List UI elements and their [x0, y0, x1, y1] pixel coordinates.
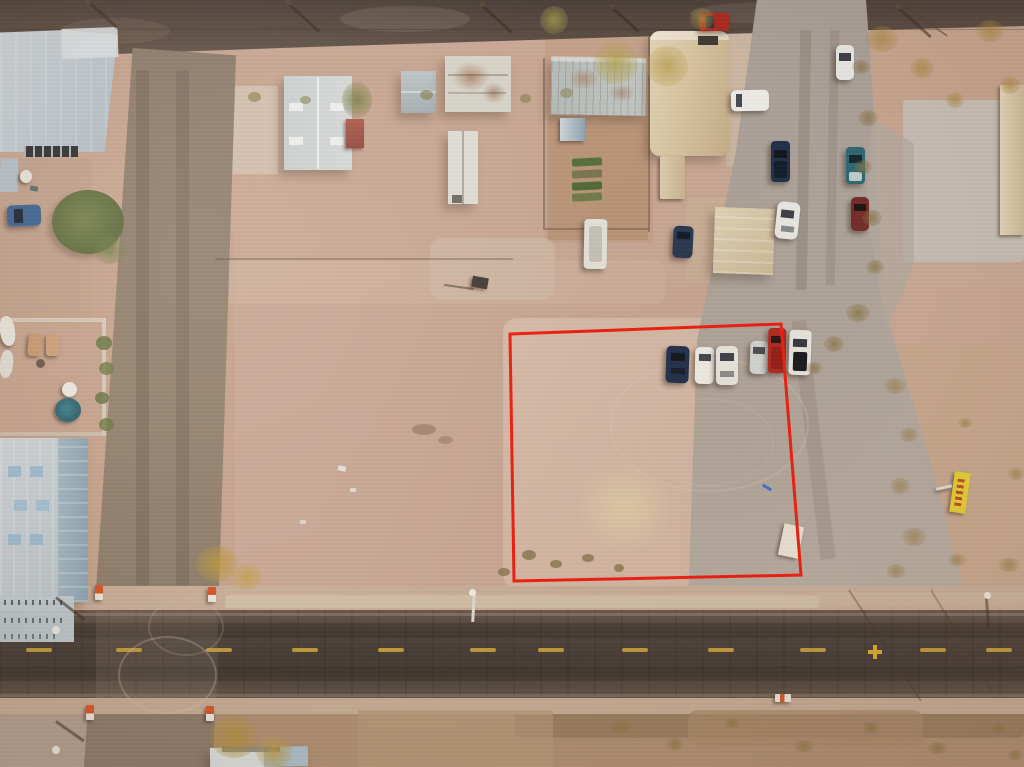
weeds-median-1	[852, 60, 870, 74]
house-west-ridge	[317, 77, 319, 169]
path-south-center	[358, 710, 553, 767]
weeds-south-2	[666, 738, 684, 750]
railing-1	[4, 600, 66, 605]
car-blue-west-glass	[14, 209, 23, 223]
garden-bed-3	[572, 181, 602, 191]
shrub-row-3	[420, 90, 433, 100]
pool	[55, 398, 81, 422]
weeds-east-4	[902, 528, 926, 546]
railing-3	[4, 634, 60, 639]
pole-base-5	[896, 4, 901, 9]
weeds-east-8	[958, 418, 972, 428]
weeds-south-4	[794, 740, 814, 752]
center-line-dash-1	[26, 648, 52, 652]
tree-large-2	[94, 236, 126, 264]
culvert-marker-3	[86, 705, 94, 720]
left-road-track-1	[136, 70, 149, 585]
skylight-3	[14, 500, 27, 511]
aerial-photo	[0, 0, 1024, 767]
lot-car-white-1-glass	[699, 354, 711, 361]
shrub-row-4	[520, 94, 531, 103]
highway-sidewalk-strip	[225, 595, 820, 608]
weeds-median-2	[858, 110, 878, 126]
culvert-marker-1	[95, 585, 103, 600]
sedan-white-rear-glass	[781, 225, 795, 232]
white-shed-door	[452, 195, 462, 203]
yard-bottom-left	[0, 712, 88, 767]
house-west-skylight-4	[330, 137, 344, 145]
car-maroon-glass	[854, 204, 866, 211]
culvert-marker-2	[208, 587, 216, 602]
survey-cross-v	[873, 645, 877, 659]
weeds-east-9	[1008, 468, 1024, 480]
center-line-dash-10	[800, 648, 826, 652]
tan-building-south-ridges	[713, 207, 775, 275]
garden-bed-1	[572, 157, 602, 167]
satellite-dish	[62, 382, 77, 397]
lot-car-white-1	[695, 347, 715, 384]
backyard-wall-bottom	[0, 432, 106, 436]
weeds-median-3	[854, 160, 872, 174]
fence-line-1	[543, 58, 545, 230]
fence-line-3	[215, 258, 513, 260]
pole-base-2	[286, 0, 291, 5]
tire-arc-crossing-2	[148, 598, 224, 656]
rust-streak-1	[448, 74, 508, 76]
bush-yard-4	[99, 418, 114, 431]
tree-yellow-west-2	[232, 564, 262, 590]
building-far-right	[1000, 85, 1024, 235]
mobile-home-rust-2	[608, 84, 636, 102]
left-road-track-2	[176, 70, 189, 585]
center-line-dash-6	[470, 648, 496, 652]
weeds-east-1	[884, 378, 906, 394]
rv-roof-line	[589, 226, 602, 262]
skylight-5	[8, 534, 21, 545]
pole-white-center-head	[469, 589, 476, 596]
shrub-row-5	[560, 88, 573, 98]
weeds-top-right-1	[866, 26, 898, 52]
tree-yellow-south-1	[210, 716, 258, 758]
weeds-south-8	[1008, 750, 1022, 760]
gravel-center	[430, 238, 555, 300]
lot-car-white-2-glass	[720, 353, 734, 361]
weeds-top-right-5	[946, 92, 964, 108]
car-blue-west	[7, 204, 42, 226]
sedan-white-glass	[781, 209, 795, 218]
rust-streak-2	[448, 92, 506, 94]
tree-mobile-2	[646, 46, 688, 86]
lot-truck-white-glass	[793, 339, 807, 347]
red-shed	[346, 119, 364, 148]
debris-white-1	[338, 465, 347, 472]
truck-navy-glass	[774, 150, 787, 158]
patio-lounger-1	[27, 334, 42, 357]
weeds-east-5	[886, 564, 906, 578]
center-line-dash-7	[538, 648, 564, 652]
pole-base-1	[86, 0, 91, 5]
weeds-east-2	[900, 428, 918, 442]
weeds-median-7	[824, 336, 844, 352]
backyard-wall-top	[0, 318, 106, 322]
tan-shed	[660, 156, 685, 199]
weeds-top-right-2	[910, 58, 934, 78]
sedan-white	[774, 201, 801, 240]
lot-truck-red-glass	[771, 336, 783, 343]
center-line-dash-9	[708, 648, 734, 652]
pole-base-4	[610, 4, 615, 9]
dark-spot-1	[412, 424, 436, 435]
weeds-top-right-3	[976, 20, 1004, 42]
weeds-south-1	[610, 720, 632, 734]
solar-panel-ticks	[24, 146, 78, 157]
tree-mobile-1	[594, 42, 638, 84]
streetlight-head-2	[52, 746, 60, 754]
lot-tuft-2	[550, 560, 562, 568]
lot-tuft-3	[582, 554, 594, 562]
bush-yard-3	[95, 392, 109, 404]
dark-spot-2	[438, 436, 453, 444]
railing-2	[4, 618, 66, 623]
tree-nw-of-mobile	[540, 6, 568, 34]
skylight-2	[30, 466, 43, 477]
bush-yard-1	[96, 336, 112, 350]
suv-white-glass	[839, 53, 851, 61]
building-sw-blue-seams	[58, 438, 88, 602]
weeds-south-3	[724, 718, 740, 728]
streetlight-head-3	[984, 592, 991, 599]
weeds-east-6	[948, 554, 966, 566]
skylight-4	[36, 500, 49, 511]
skylight-6	[30, 534, 43, 545]
center-line-dash-4	[292, 648, 318, 652]
tree-top-1	[690, 8, 714, 30]
van-white-glass	[736, 94, 742, 107]
small-shed-blue	[560, 118, 585, 141]
weeds-top-right-4	[1000, 76, 1020, 94]
truck-navy-bed	[774, 161, 787, 178]
car-navy-south	[672, 225, 694, 258]
garden-bed-2	[572, 169, 602, 179]
weeds-median-6	[846, 304, 870, 322]
car-navy-south-glass	[677, 232, 690, 240]
center-line-dash-12	[986, 648, 1012, 652]
building-nw-annex	[0, 158, 19, 193]
patio-lounger-2	[46, 334, 59, 356]
house-west-skylight-3	[289, 137, 303, 145]
tire-arc-lot-2	[645, 398, 774, 487]
center-line-dash-11	[920, 648, 946, 652]
tan-building-vent	[698, 36, 718, 45]
house-west-skylight-1	[289, 103, 303, 111]
shrub-row-2	[300, 96, 311, 104]
culvert-marker-4	[206, 706, 214, 721]
patio-table	[36, 359, 45, 368]
shrub-row-1	[248, 92, 261, 102]
pole-base-3	[480, 2, 485, 7]
lot-car-navy	[665, 346, 689, 384]
weeds-south-6	[928, 742, 948, 754]
tree-yellow-south-2	[256, 736, 292, 767]
bush-yard-2	[99, 362, 114, 375]
weeds-east-7	[998, 558, 1020, 572]
center-line-dash-5	[378, 648, 404, 652]
lot-car-white-2	[716, 346, 738, 385]
weeds-east-3	[890, 478, 910, 494]
weeds-median-4	[862, 210, 882, 226]
suv-white	[836, 45, 854, 80]
center-line-dash-8	[622, 648, 648, 652]
highway-sidewalk-strip-east	[818, 592, 1024, 605]
building-nw-white-section	[61, 27, 118, 59]
white-equipment	[20, 170, 32, 183]
lot-car-silver	[749, 341, 768, 375]
lot-car-navy-glass	[671, 353, 685, 361]
lot-car-white-2-rear	[720, 371, 734, 377]
weeds-south-7	[990, 724, 1006, 734]
lot-truck-red-bed	[771, 347, 783, 369]
lot-car-silver-glass	[753, 347, 765, 354]
lot-tuft-1	[522, 550, 536, 560]
garden-bed-4	[572, 192, 602, 202]
streetlight-head-1	[52, 626, 60, 634]
debris-white-2	[350, 488, 356, 492]
white-shed-ridge	[462, 131, 464, 204]
weeds-south-5	[862, 722, 880, 734]
culvert-marker-5	[775, 694, 791, 702]
skylight-1	[8, 466, 21, 477]
debris-white-3	[300, 520, 306, 524]
lot-tuft-4	[614, 564, 624, 572]
weeds-median-5	[866, 260, 884, 274]
tree-house-west	[342, 82, 372, 118]
lot-tuft-5	[498, 568, 510, 576]
lot-car-navy-rear	[671, 368, 685, 374]
weeds-median-8	[806, 362, 822, 374]
